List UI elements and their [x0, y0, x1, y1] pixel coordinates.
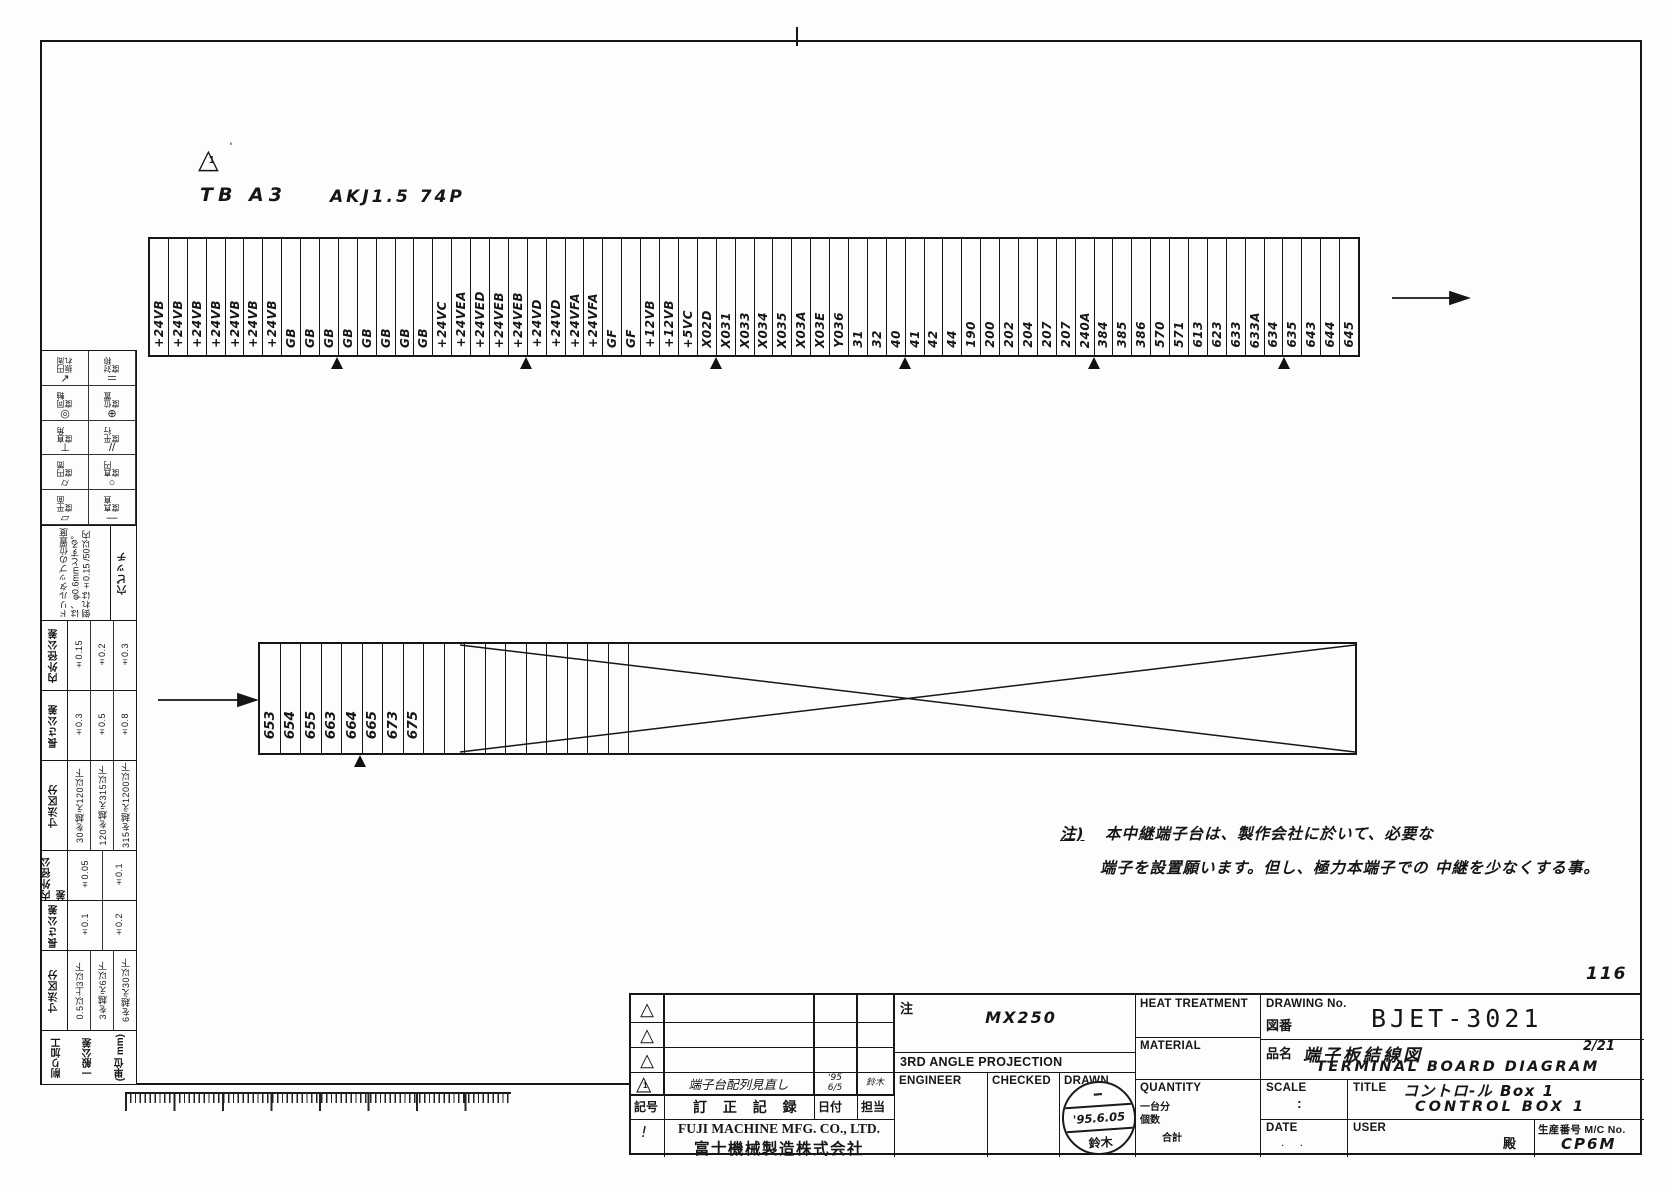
terminal-label: 643	[1304, 321, 1318, 348]
note-line-1: 注) 本中継端子台は、製作会社に於いて、必要な	[1060, 822, 1434, 844]
terminal-cell: 31	[849, 239, 868, 355]
symbol-label: 直角度	[57, 421, 73, 443]
symbol-label: 同軸度	[57, 386, 73, 408]
terminal-label: +24VC	[435, 301, 449, 348]
symbol-label: 対称度	[104, 351, 120, 373]
terminal-label: GB	[303, 328, 317, 348]
hole-pitch-header: 穴ピッチ	[110, 526, 136, 620]
symbol-label: 位置度	[104, 386, 120, 408]
tolerance-value: ±0.2	[103, 901, 137, 950]
terminal-label: +24VB	[152, 300, 166, 348]
serial-value: CP6M	[1561, 1135, 1616, 1153]
terminal-label: GB	[322, 328, 336, 348]
symbol-glyph: ↗	[60, 374, 69, 385]
tolerance-table: 内外径公差±0.05±0.1	[42, 851, 136, 901]
tolerance-values: 0.5以上3以下3を越え6以下6を越え30以下	[68, 951, 136, 1030]
terminal-label: X035	[775, 312, 789, 348]
approval-stamp: ▪▪▪▪ '95.6.05 鈴木	[1060, 1079, 1139, 1158]
terminal-label: +24VFA	[568, 293, 582, 348]
tolerance-table: 寸法区分0.5以上3以下3を越え6以下6を越え30以下	[42, 951, 136, 1031]
terminal-cell: 32	[868, 239, 887, 355]
terminal-label: Y036	[832, 312, 846, 348]
machine-model: MX250	[971, 1008, 1071, 1027]
terminal-cell: X03A	[792, 239, 811, 355]
engineer-label: ENGINEER	[899, 1075, 961, 1087]
triangle-icon: △	[640, 1000, 654, 1018]
terminal-label: +5VC	[681, 310, 695, 349]
terminal-label: GB	[379, 328, 393, 348]
terminal-cell: 613	[1189, 239, 1208, 355]
terminal-label: 200	[983, 321, 997, 348]
symbol-glyph: —	[107, 513, 118, 524]
checked-label: CHECKED	[992, 1075, 1051, 1087]
symbol-label: 平面度	[57, 490, 73, 512]
terminal-label: 190	[964, 321, 978, 348]
tolerance-table: 長さ公差±0.1±0.2	[42, 901, 136, 951]
terminal-cell: 570	[1151, 239, 1170, 355]
symbol-glyph: ◎	[60, 409, 70, 420]
tolerance-value: 315を越え1200以下	[114, 761, 136, 850]
geometry-symbol-cell: 円筒度⌭	[42, 455, 89, 490]
terminal-label: GB	[416, 328, 430, 348]
mount-marker	[1278, 357, 1290, 369]
terminal-cell: 200	[981, 239, 1000, 355]
company-name-jp: 富士機械製造株式会社	[664, 1137, 894, 1159]
revision-description	[664, 1048, 814, 1073]
tolerance-header: 寸法区分	[42, 761, 68, 850]
terminal-cell: 633	[1227, 239, 1246, 355]
arrow-left-continuation	[238, 694, 256, 706]
terminal-cell: 384	[1095, 239, 1114, 355]
terminal-label: 42	[926, 330, 940, 348]
drawing-number: BJET-3021	[1371, 1004, 1542, 1033]
terminal-cell: X035	[773, 239, 792, 355]
note-label: 注	[900, 998, 913, 1017]
hole-pitch-table: ドリルタップの位置度は、φ0.6mmとする。倒れは±0.15 /50以内穴ピッチ	[42, 526, 136, 621]
terminal-label: 570	[1153, 321, 1167, 348]
terminal-label: +24VEA	[454, 291, 468, 348]
terminal-label: 663	[323, 711, 339, 739]
title-label: TITLE	[1353, 1082, 1386, 1094]
terminal-cell: 654	[281, 644, 302, 753]
terminal-label: 32	[870, 330, 884, 348]
terminal-label: 571	[1172, 321, 1186, 348]
terminal-cell: GB	[339, 239, 358, 355]
tolerance-value: ±0.05	[68, 851, 103, 900]
terminal-cell	[609, 644, 630, 753]
terminal-cell: 40	[887, 239, 906, 355]
terminal-label: +24VD	[530, 299, 544, 348]
triangle-icon: △	[640, 1026, 654, 1044]
terminal-cell: +5VC	[679, 239, 698, 355]
tolerance-value: ±0.3	[68, 691, 91, 760]
terminal-label: +24VB	[228, 300, 242, 348]
revision-description: 端子台配列見直し	[664, 1073, 814, 1095]
terminal-label: 207	[1059, 321, 1073, 348]
terminal-label: +24VFA	[586, 293, 600, 348]
terminal-cell: 635	[1283, 239, 1302, 355]
terminal-cell: +12VB	[641, 239, 660, 355]
tolerance-values: ±0.3±0.5±0.8	[68, 691, 136, 760]
date-label: DATE	[1266, 1122, 1298, 1134]
geometry-symbol-cell: 真円度○	[89, 455, 136, 490]
title-en: CONTROL BOX 1	[1415, 1099, 1586, 1115]
bottom-terminal-strip: 653654655663664665673675	[258, 642, 1357, 755]
revision-mark: △	[631, 1048, 664, 1073]
empty-terminal-region	[629, 644, 1355, 753]
terminal-label: 613	[1191, 321, 1205, 348]
ruler-artifact	[125, 1092, 511, 1118]
terminal-cell: 623	[1208, 239, 1227, 355]
terminal-cell: 386	[1132, 239, 1151, 355]
terminal-cell: +24VEB	[509, 239, 528, 355]
terminal-label: 384	[1096, 321, 1110, 348]
terminal-label: 673	[385, 711, 401, 739]
zuban-label: 図番	[1266, 1015, 1292, 1034]
terminal-label: 386	[1134, 321, 1148, 348]
tolerance-value: ±0.3	[114, 621, 136, 690]
hinmei-label: 品名	[1266, 1043, 1292, 1062]
page-fraction: 2/21	[1583, 1039, 1615, 1054]
terminal-label: 633	[1229, 321, 1243, 348]
revision-header-mark: 記号	[634, 1098, 658, 1115]
terminal-label: GB	[284, 328, 298, 348]
footer-line: 一般公差	[81, 1038, 96, 1078]
terminal-label: 204	[1021, 321, 1035, 348]
symbol-label: 円筒度	[57, 455, 73, 477]
terminal-cell: 42	[925, 239, 944, 355]
terminal-cell: +24VB	[150, 239, 169, 355]
terminal-cell: 655	[301, 644, 322, 753]
revision-number: 1	[209, 155, 215, 166]
revision-date	[814, 1023, 857, 1048]
revision-date: '956/5	[814, 1073, 857, 1095]
terminal-cell: X031	[717, 239, 736, 355]
terminal-cell: 44	[943, 239, 962, 355]
terminal-cell: GB	[377, 239, 396, 355]
terminal-cell: 634	[1265, 239, 1284, 355]
terminal-cell: GB	[358, 239, 377, 355]
terminal-cell	[506, 644, 527, 753]
terminal-label: +24VED	[473, 291, 487, 348]
hole-pitch-note: ドリルタップの位置度は、φ0.6mmとする。倒れは±0.15 /50以内	[42, 526, 110, 620]
tolerance-sidebar: 円周振れ↗対称度＝同軸度◎位置度⊕直角度⊥平行度//円筒度⌭真円度○平面度▱真直…	[42, 350, 137, 1085]
terminal-cell: +24VB	[207, 239, 226, 355]
mount-marker	[710, 357, 722, 369]
sheet-number: 116	[1586, 964, 1628, 984]
symbol-glyph: ⊥	[60, 443, 70, 454]
terminal-cell: 202	[1000, 239, 1019, 355]
tolerance-value: ±0.2	[91, 621, 114, 690]
terminal-label: 31	[851, 330, 865, 348]
terminal-label: 40	[889, 330, 903, 348]
terminal-cell	[588, 644, 609, 753]
symbol-label: 平行度	[104, 421, 120, 443]
terminal-label: 207	[1040, 321, 1054, 348]
tolerance-value: ±0.1	[103, 851, 137, 900]
terminal-cell: 41	[906, 239, 925, 355]
scale-value: :	[1297, 1095, 1302, 1111]
revision-prime: '	[230, 140, 232, 154]
geometry-symbol-cell: 直角度⊥	[42, 421, 89, 456]
scale-label: SCALE	[1266, 1082, 1306, 1094]
geometry-symbol-cell: 同軸度◎	[42, 386, 89, 421]
arrow-right-continuation	[1450, 292, 1468, 304]
terminal-cell	[568, 644, 589, 753]
tolerance-value: 120を越え315以下	[91, 761, 114, 850]
stray-mark: !	[641, 1123, 647, 1141]
user-label: USER	[1353, 1122, 1386, 1134]
terminal-cell: 207	[1038, 239, 1057, 355]
terminal-cell: X033	[736, 239, 755, 355]
terminal-label: +24VEB	[492, 292, 506, 348]
tolerance-values: ±0.1±0.2	[68, 901, 136, 950]
terminal-label: 655	[303, 711, 319, 739]
terminal-label: +24VEB	[511, 292, 525, 348]
tolerance-value: 0.5以上3以下	[68, 951, 91, 1030]
tolerance-header: 長さ公差	[42, 691, 68, 760]
terminal-cell: X034	[755, 239, 774, 355]
terminal-label: 653	[262, 711, 278, 739]
note-text-1: 本中継端子台は、製作会社に於いて、必要な	[1105, 825, 1434, 843]
terminal-label: X033	[738, 312, 752, 348]
revision-mark: △	[631, 995, 664, 1023]
terminal-cell: +24VEB	[490, 239, 509, 355]
revision-triangle-marker: △ 1 '	[198, 146, 228, 172]
terminal-label: 385	[1115, 321, 1129, 348]
symbol-glyph: ⌭	[61, 478, 69, 489]
geometry-symbol-cell: 平面度▱	[42, 490, 89, 525]
revision-description	[664, 995, 814, 1023]
symbol-glyph: //	[109, 443, 115, 454]
terminal-cell: 204	[1019, 239, 1038, 355]
revision-description	[664, 1023, 814, 1048]
terminal-cell: GB	[396, 239, 415, 355]
terminal-cell	[547, 644, 568, 753]
symbol-label: 真円度	[104, 455, 120, 477]
terminal-cell: +12VB	[660, 239, 679, 355]
quantity-label: QUANTITY	[1140, 1082, 1201, 1094]
terminal-cell: +24VD	[528, 239, 547, 355]
geometry-symbol-cell: 平行度//	[89, 421, 136, 456]
terminal-label: 634	[1266, 321, 1280, 348]
tolerance-value: 3を越え6以下	[91, 951, 114, 1030]
terminal-cell: 673	[383, 644, 404, 753]
title-block: △△△△1'端子台配列見直し'956/5鈴木 記号 訂 正 記 録 日付 担当 …	[629, 993, 1642, 1155]
symbol-label: 真直度	[104, 490, 120, 512]
terminal-label: 623	[1210, 321, 1224, 348]
terminal-label: +24VB	[246, 300, 260, 348]
terminal-cell: Y036	[830, 239, 849, 355]
terminal-label: 675	[405, 711, 421, 739]
mount-marker	[520, 357, 532, 369]
symbol-glyph: ＝	[107, 374, 118, 385]
terminal-label: 633A	[1248, 312, 1262, 348]
terminal-cell: 665	[363, 644, 384, 753]
terminal-label: GB	[398, 328, 412, 348]
terminal-label: 644	[1323, 321, 1337, 348]
title-jp: コントロ-ル Box 1	[1403, 1080, 1555, 1101]
revision-triangle-marker: △1'	[636, 1074, 658, 1094]
terminal-label: X03A	[794, 311, 808, 348]
machining-tolerance-footer: 削り加工一般公差(単位 mm)	[42, 1031, 136, 1084]
heat-treatment-label: HEAT TREATMENT	[1140, 998, 1248, 1010]
terminal-label: +24VB	[209, 300, 223, 348]
projection-label: 3RD ANGLE PROJECTION	[900, 1055, 1063, 1069]
terminal-label: 240A	[1078, 312, 1092, 348]
terminal-cell: 664	[342, 644, 363, 753]
revision-header-date: 日付	[818, 1098, 842, 1115]
terminal-label: GF	[624, 329, 638, 348]
terminal-label: +24VB	[265, 300, 279, 348]
symbol-glyph: ○	[109, 478, 116, 489]
revision-by	[857, 995, 894, 1023]
tolerance-values: ±0.05±0.1	[68, 851, 136, 900]
terminal-cell: 675	[404, 644, 425, 753]
symbol-glyph: ⊕	[107, 409, 116, 420]
terminal-cell	[445, 644, 466, 753]
top-terminal-strip: +24VB+24VB+24VB+24VB+24VB+24VB+24VBGBGBG…	[148, 237, 1360, 357]
revision-date	[814, 1048, 857, 1073]
company-block: FUJI MACHINE MFG. CO., LTD. 富士機械製造株式会社	[664, 1121, 894, 1159]
terminal-label: X031	[719, 312, 733, 348]
mount-marker	[1088, 357, 1100, 369]
terminal-label: +24VB	[171, 300, 185, 348]
terminal-cell: +24VB	[226, 239, 245, 355]
terminal-cell: +24VB	[188, 239, 207, 355]
tolerance-value: ±0.8	[114, 691, 136, 760]
revision-mark: △	[631, 1023, 664, 1048]
terminal-cell: 663	[322, 644, 343, 753]
terminal-label: 44	[945, 330, 959, 348]
tolerance-value: ±0.15	[68, 621, 91, 690]
tolerance-table: 寸法区分30を越え120以下120を越え315以下315を越え1200以下	[42, 761, 136, 851]
terminal-label: X03E	[813, 312, 827, 348]
material-label: MATERIAL	[1140, 1040, 1201, 1052]
terminal-cell: 240A	[1076, 239, 1095, 355]
terminal-label: 635	[1285, 321, 1299, 348]
revision-date	[814, 995, 857, 1023]
symbol-glyph: ▱	[61, 513, 69, 524]
revision-header-by: 担当	[861, 1098, 885, 1115]
terminal-cell	[424, 644, 445, 753]
revision-by: 鈴木	[857, 1073, 894, 1095]
terminal-spec-label: AKJ1.5 74P	[330, 187, 465, 207]
terminal-label: +12VB	[643, 300, 657, 348]
terminal-cell: GF	[622, 239, 641, 355]
terminal-cell: +24VB	[263, 239, 282, 355]
terminal-cell: 643	[1302, 239, 1321, 355]
geometry-symbol-cell: 位置度⊕	[89, 386, 136, 421]
terminal-cell	[465, 644, 486, 753]
terminal-cell	[486, 644, 507, 753]
terminal-board-label: TB A3	[200, 184, 287, 206]
tolerance-values: 30を越え120以下120を越え315以下315を越え1200以下	[68, 761, 136, 850]
tolerance-value: ±0.5	[91, 691, 114, 760]
terminal-cell: 571	[1170, 239, 1189, 355]
tolerance-header: 内外径公差	[42, 621, 68, 690]
revision-by	[857, 1048, 894, 1073]
tolerance-value: 6を越え30以下	[114, 951, 136, 1030]
tolerance-value: 30を越え120以下	[68, 761, 91, 850]
tolerance-value: ±0.1	[68, 901, 103, 950]
terminal-cell: GF	[603, 239, 622, 355]
footer-line: (単位 mm)	[113, 1034, 128, 1081]
mount-marker	[354, 755, 366, 767]
drawing-sheet: △ 1 ' TB A3 AKJ1.5 74P +24VB+24VB+24VB+2…	[0, 0, 1672, 1190]
terminal-cell: GB	[301, 239, 320, 355]
stamp-name: 鈴木	[1065, 1129, 1136, 1156]
terminal-cell: 207	[1057, 239, 1076, 355]
user-honorific: 殿	[1503, 1133, 1516, 1152]
terminal-label: GB	[341, 328, 355, 348]
geometry-symbol-cell: 対称度＝	[89, 351, 136, 386]
terminal-cell: +24VFA	[584, 239, 603, 355]
terminal-cell: 633A	[1246, 239, 1265, 355]
terminal-cell: 645	[1340, 239, 1358, 355]
terminal-label: +24VD	[549, 299, 563, 348]
terminal-cell: X03E	[811, 239, 830, 355]
terminal-label: GF	[605, 329, 619, 348]
terminal-cell: +24VB	[169, 239, 188, 355]
terminal-label: GB	[360, 328, 374, 348]
revision-header-record: 訂 正 記 録	[693, 1097, 803, 1117]
terminal-label: 202	[1002, 321, 1016, 348]
terminal-cell: +24VEA	[452, 239, 471, 355]
revision-mark: △1'	[631, 1073, 664, 1095]
terminal-cell: 190	[962, 239, 981, 355]
mount-marker	[331, 357, 343, 369]
terminal-cell: GB	[320, 239, 339, 355]
terminal-label: 41	[908, 330, 922, 348]
terminal-label: 664	[344, 711, 360, 739]
terminal-cell: 653	[260, 644, 281, 753]
quantity-count-label: 個数	[1140, 1111, 1160, 1126]
revision-by	[857, 1023, 894, 1048]
footer-line: 削り加工	[50, 1038, 65, 1078]
terminal-cell: GB	[414, 239, 433, 355]
terminal-cell: 385	[1113, 239, 1132, 355]
tolerance-header: 内外径公差	[42, 851, 68, 900]
terminal-label: +12VB	[662, 300, 676, 348]
terminal-cell: +24VFA	[566, 239, 585, 355]
terminal-label: +24VB	[190, 300, 204, 348]
terminal-cell	[527, 644, 548, 753]
mount-marker	[899, 357, 911, 369]
product-name-en: TERMINAL BOARD DIAGRAM	[1316, 1059, 1600, 1075]
terminal-label: X034	[756, 312, 770, 348]
note-line-2: 端子を設置願います。但し、極力本端子での 中継を少なくする事。	[1100, 856, 1600, 878]
terminal-cell: +24VB	[244, 239, 263, 355]
terminal-label: 665	[364, 711, 380, 739]
company-name-en: FUJI MACHINE MFG. CO., LTD.	[664, 1121, 894, 1137]
geometry-symbol-cell: 真直度—	[89, 490, 136, 525]
geometry-symbol-cell: 円周振れ↗	[42, 351, 89, 386]
drawing-no-label: DRAWING No.	[1266, 998, 1347, 1010]
terminal-cell: 644	[1321, 239, 1340, 355]
terminal-label: 654	[282, 711, 298, 739]
triangle-icon: △	[640, 1051, 654, 1069]
date-value: . .	[1281, 1135, 1309, 1149]
terminal-cell: +24VED	[471, 239, 490, 355]
note-prefix: 注)	[1060, 825, 1085, 843]
tolerance-header: 長さ公差	[42, 901, 68, 950]
terminal-cell: +24VC	[433, 239, 452, 355]
terminal-cell: GB	[282, 239, 301, 355]
geometry-symbol-table: 円周振れ↗対称度＝同軸度◎位置度⊕直角度⊥平行度//円筒度⌭真円度○平面度▱真直…	[42, 351, 136, 526]
tolerance-header: 寸法区分	[42, 951, 68, 1030]
terminal-cell: X02D	[698, 239, 717, 355]
